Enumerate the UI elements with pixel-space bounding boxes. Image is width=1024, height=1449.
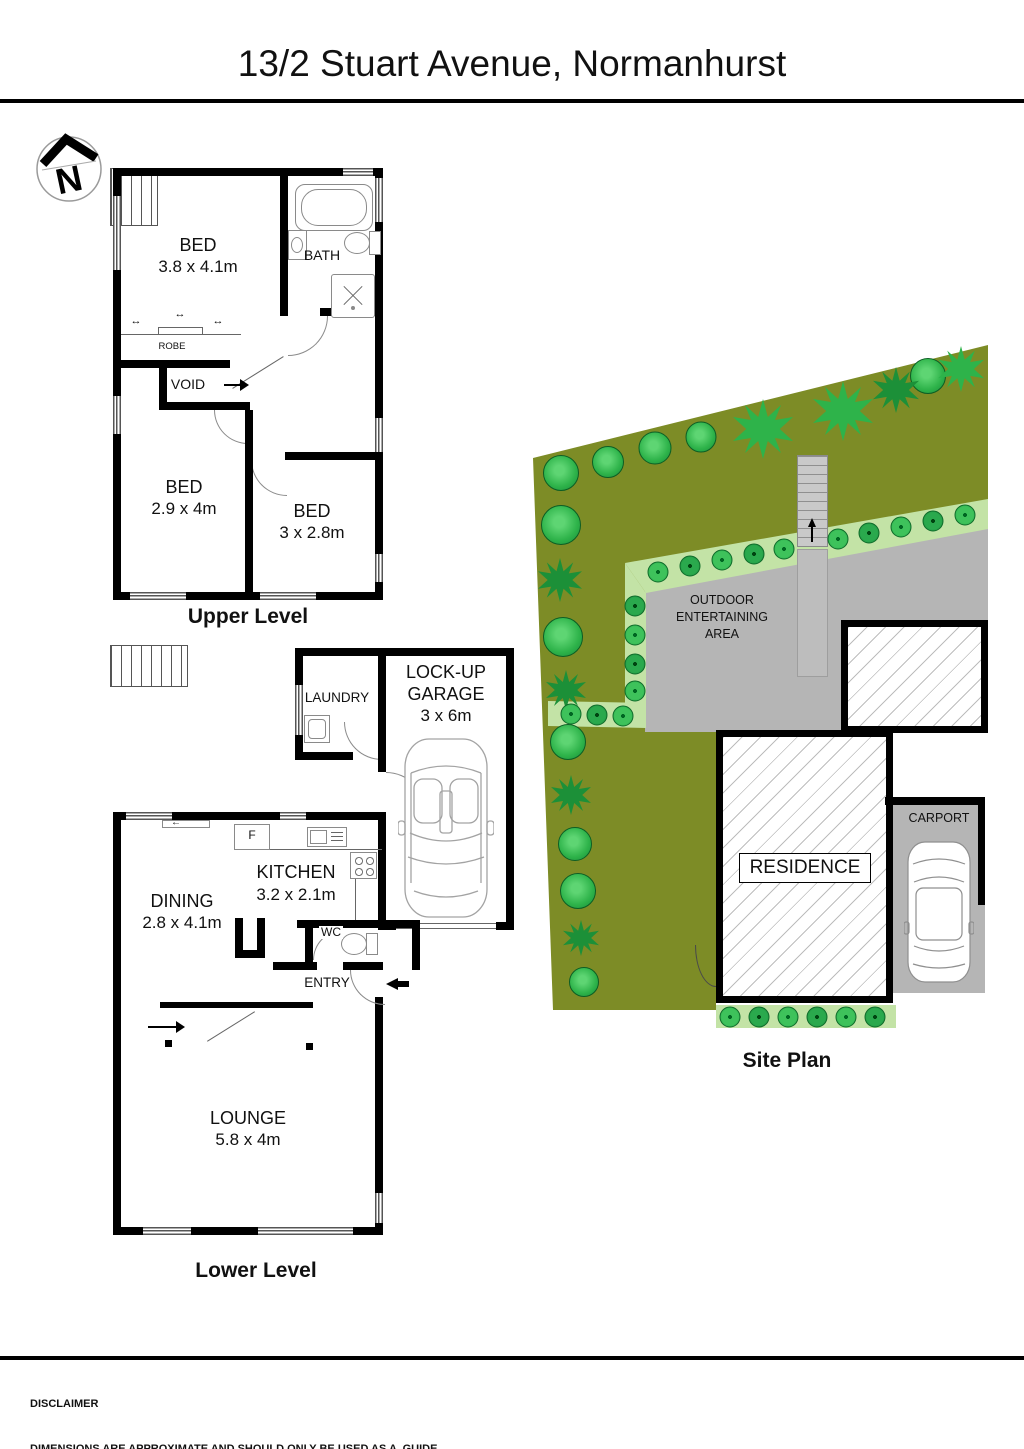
wall — [978, 805, 985, 905]
door-arc — [251, 460, 287, 496]
outdoor-line-3: AREA — [652, 626, 792, 643]
bush-icon — [859, 523, 880, 544]
drainer-line — [331, 836, 343, 837]
bush-icon — [778, 1007, 799, 1028]
window — [113, 396, 121, 434]
stair-arrow — [148, 1026, 176, 1028]
garage-label-1: LOCK-UP — [406, 663, 486, 683]
fridge-label: F — [248, 829, 255, 842]
residence-label: RESIDENCE — [750, 857, 861, 879]
stair-arrow-head — [808, 518, 816, 527]
dining-label: DINING — [151, 892, 214, 912]
basin-bowl — [291, 237, 303, 253]
lounge-dims: 5.8 x 4m — [215, 1131, 280, 1150]
lower-level-caption: Lower Level — [195, 1259, 316, 1282]
bush-icon — [749, 1007, 770, 1028]
disclaimer-line-1: DIMENSIONS ARE APPROXIMATE AND SHOULD ON… — [30, 1442, 730, 1449]
stair-arrow-head — [240, 379, 249, 391]
stair-arrow — [224, 384, 240, 386]
residence-wing — [841, 620, 988, 733]
bush-icon — [587, 705, 608, 726]
window — [130, 592, 186, 600]
tree-icon — [639, 432, 672, 465]
tree-icon — [560, 873, 596, 909]
tree-icon — [686, 422, 717, 453]
wall — [378, 648, 386, 772]
wall — [245, 410, 253, 592]
bush-icon — [923, 511, 944, 532]
tree-icon — [569, 967, 599, 997]
wall — [412, 920, 420, 970]
bush-icon — [836, 1007, 857, 1028]
bush-icon — [828, 529, 849, 550]
stove — [350, 852, 377, 879]
staircase — [110, 645, 188, 687]
sliding-window — [162, 820, 210, 828]
north-compass-icon: N N — [34, 130, 104, 204]
header-divider — [0, 99, 1024, 103]
bush-icon — [680, 556, 701, 577]
window — [295, 685, 303, 735]
window — [258, 1227, 353, 1235]
kitchen-label: KITCHEN — [256, 863, 335, 883]
shower-drain — [351, 306, 355, 310]
tree-icon — [543, 455, 579, 491]
bush-icon — [712, 550, 733, 571]
site-plan: RESIDENCE CARPORT OUTDOO — [533, 342, 1015, 1087]
robe-label: ROBE — [159, 342, 186, 352]
window — [375, 554, 383, 582]
wall — [305, 928, 313, 964]
window — [343, 168, 373, 176]
bush-icon — [648, 562, 669, 583]
wall — [113, 812, 121, 1235]
bush-icon — [955, 505, 976, 526]
window — [143, 1227, 191, 1235]
drainer-line — [331, 832, 343, 833]
lower-level-plan: LAUNDRY LOCK-UP GARAGE 3 x 6m — [110, 645, 522, 1305]
tree-icon — [543, 617, 583, 657]
bush-icon — [807, 1007, 828, 1028]
page-title: 13/2 Stuart Avenue, Normanhurst — [238, 44, 786, 85]
robe-step — [202, 327, 203, 335]
wall — [280, 176, 288, 316]
toilet-tank — [369, 231, 381, 255]
tree-icon — [550, 724, 586, 760]
bathtub-inner — [301, 189, 367, 226]
toilet-bowl — [341, 933, 367, 955]
bath-label: BATH — [304, 248, 340, 263]
post — [165, 1040, 172, 1047]
door-arc — [214, 410, 248, 444]
bush-icon — [774, 539, 795, 560]
wall — [506, 648, 514, 930]
kitchen-dims: 3.2 x 2.1m — [256, 886, 335, 905]
upper-level-plan: ↔ ↔ ↔ ROBE VOID BED 3.8 x 4.1m BATH BED — [110, 168, 386, 638]
wall — [235, 950, 265, 958]
kitchen-sink-bowl — [310, 830, 327, 844]
robe-front-line — [121, 334, 241, 335]
disclaimer: DISCLAIMER DIMENSIONS ARE APPROXIMATE AN… — [30, 1367, 730, 1449]
drainer-line — [331, 840, 343, 841]
slide-arrow-icon: ← — [171, 817, 181, 828]
bed1-dims: 3.8 x 4.1m — [158, 258, 237, 277]
window — [375, 418, 383, 454]
wall — [297, 920, 420, 928]
bush-icon — [744, 544, 765, 565]
car-icon — [398, 733, 494, 923]
floorplan-sheet: 13/2 Stuart Avenue, Normanhurst N N — [0, 0, 1024, 1449]
window — [113, 196, 121, 270]
bed3-label: BED — [293, 502, 330, 522]
window — [126, 812, 172, 820]
laundry-label: LAUNDRY — [305, 691, 369, 706]
tree-icon — [592, 446, 624, 478]
void-label: VOID — [171, 377, 205, 392]
window — [375, 1193, 383, 1223]
entry-label: ENTRY — [304, 976, 350, 991]
laundry-tub-inner — [308, 719, 326, 739]
window — [375, 178, 383, 222]
bed1-label: BED — [179, 236, 216, 256]
bed2-label: BED — [165, 478, 202, 498]
entry-arrow-stem — [398, 981, 409, 987]
bush-icon — [891, 517, 912, 538]
entry-arrow-icon — [386, 978, 398, 990]
bush-icon — [625, 596, 646, 617]
stair-break-line — [207, 1011, 255, 1042]
outdoor-area-label: OUTDOOR ENTERTAINING AREA — [652, 592, 792, 643]
bush-icon — [720, 1007, 741, 1028]
post — [306, 1043, 313, 1050]
wc-label: WC — [319, 926, 343, 939]
slide-arrow-icon: ↔ — [131, 315, 142, 327]
tree-icon — [558, 827, 592, 861]
upper-level-caption: Upper Level — [188, 605, 308, 628]
toilet-tank — [366, 933, 378, 955]
footer-divider — [0, 1356, 1024, 1360]
lounge-label: LOUNGE — [210, 1109, 286, 1129]
slide-arrow-icon: ↔ — [213, 315, 224, 327]
disclaimer-heading: DISCLAIMER — [30, 1397, 730, 1412]
window — [260, 592, 316, 600]
door-arc — [288, 316, 328, 356]
garage-dims: 3 x 6m — [420, 707, 471, 726]
wall — [285, 452, 383, 460]
counter-line — [355, 879, 356, 920]
site-plan-caption: Site Plan — [743, 1049, 832, 1072]
counter-line — [270, 849, 382, 850]
bush-icon — [625, 625, 646, 646]
wall — [885, 797, 985, 805]
stair-arrow-head — [176, 1021, 185, 1033]
window — [280, 812, 306, 820]
wall — [343, 962, 383, 970]
stair-arrow — [811, 526, 813, 542]
carport-label: CARPORT — [909, 812, 970, 826]
wall — [113, 360, 230, 368]
wall — [160, 1002, 313, 1008]
bush-icon — [613, 706, 634, 727]
toilet-bowl — [344, 232, 370, 254]
tree-icon — [541, 505, 581, 545]
robe-step — [158, 327, 202, 328]
garage-door-line — [386, 928, 506, 929]
wall — [496, 922, 514, 930]
car-icon — [904, 838, 974, 986]
bush-icon — [625, 681, 646, 702]
wall — [295, 648, 514, 656]
bush-icon — [865, 1007, 886, 1028]
outdoor-line-2: ENTERTAINING — [652, 609, 792, 626]
robe-step — [158, 327, 159, 335]
wall — [159, 402, 250, 410]
wall — [273, 962, 317, 970]
door-arc — [350, 970, 385, 1005]
residence-label-box: RESIDENCE — [739, 853, 871, 883]
outdoor-line-1: OUTDOOR — [652, 592, 792, 609]
wall — [295, 752, 353, 760]
bed3-dims: 3 x 2.8m — [279, 524, 344, 543]
bush-icon — [625, 654, 646, 675]
slide-arrow-icon: ↔ — [175, 308, 186, 320]
dining-dims: 2.8 x 4.1m — [142, 914, 221, 933]
bush-icon — [561, 704, 582, 725]
wall — [378, 812, 386, 930]
bed2-dims: 2.9 x 4m — [151, 500, 216, 519]
garage-label-2: GARAGE — [407, 685, 484, 705]
stair-retaining-wall — [797, 549, 828, 677]
